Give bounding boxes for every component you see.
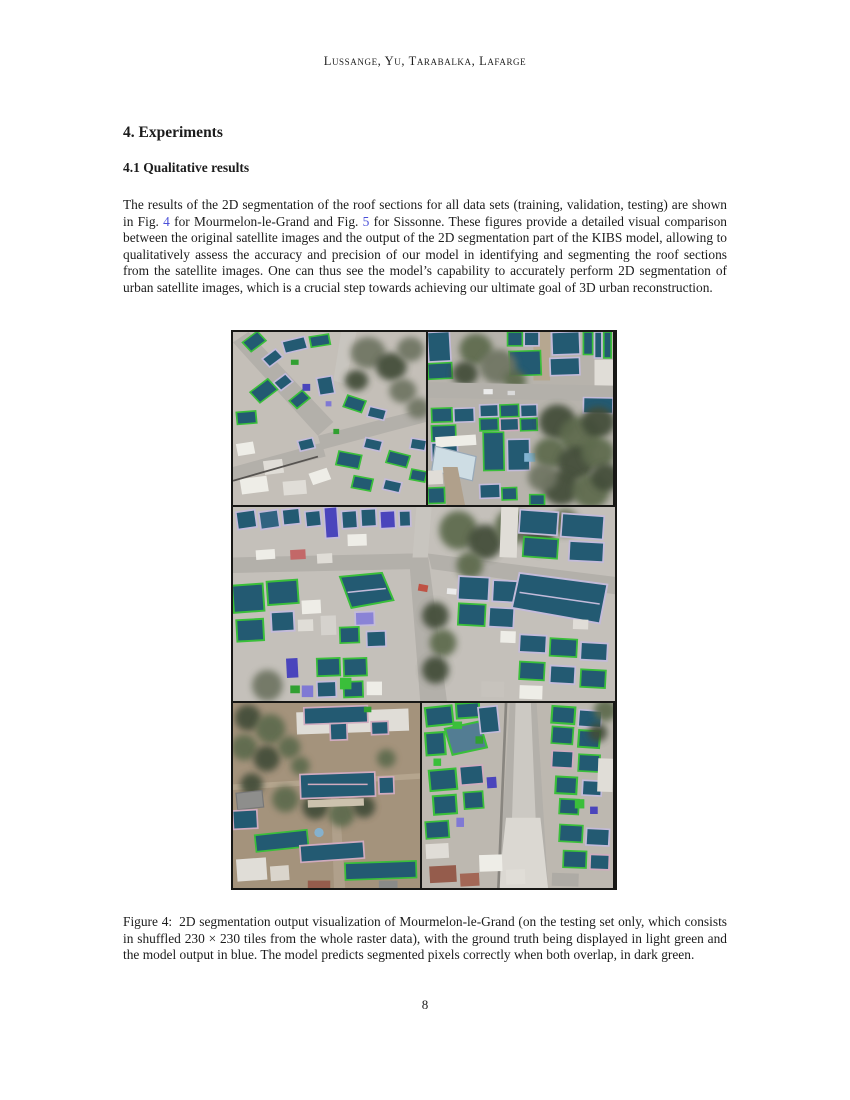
satellite-tile-middle [233,507,615,701]
figure-caption: Figure 4:2D segmentation output visualiz… [123,914,727,963]
figure-4-image-mosaic [231,330,617,890]
paragraph-text: for Mourmelon-le-Grand and Fig. [170,214,363,229]
satellite-tile-bottom-right [422,703,613,888]
satellite-tile-top-right [428,332,613,505]
running-head: Lussange, Yu, Tarabalka, Lafarge [0,54,850,69]
figure-caption-text: 2D segmentation output visualization of … [123,914,727,962]
satellite-tile-bottom-left [233,703,420,888]
section-heading: 4. Experiments [123,124,727,142]
paper-page: Lussange, Yu, Tarabalka, Lafarge 4. Expe… [0,0,850,1100]
subsection-heading: 4.1 Qualitative results [123,160,727,176]
figure-caption-label: Figure 4: [123,914,179,929]
body-paragraph: The results of the 2D segmentation of th… [123,197,727,296]
satellite-tile-top-left [233,332,426,505]
figure-4-reference-link[interactable]: 4 [163,214,170,229]
page-number: 8 [0,997,850,1013]
